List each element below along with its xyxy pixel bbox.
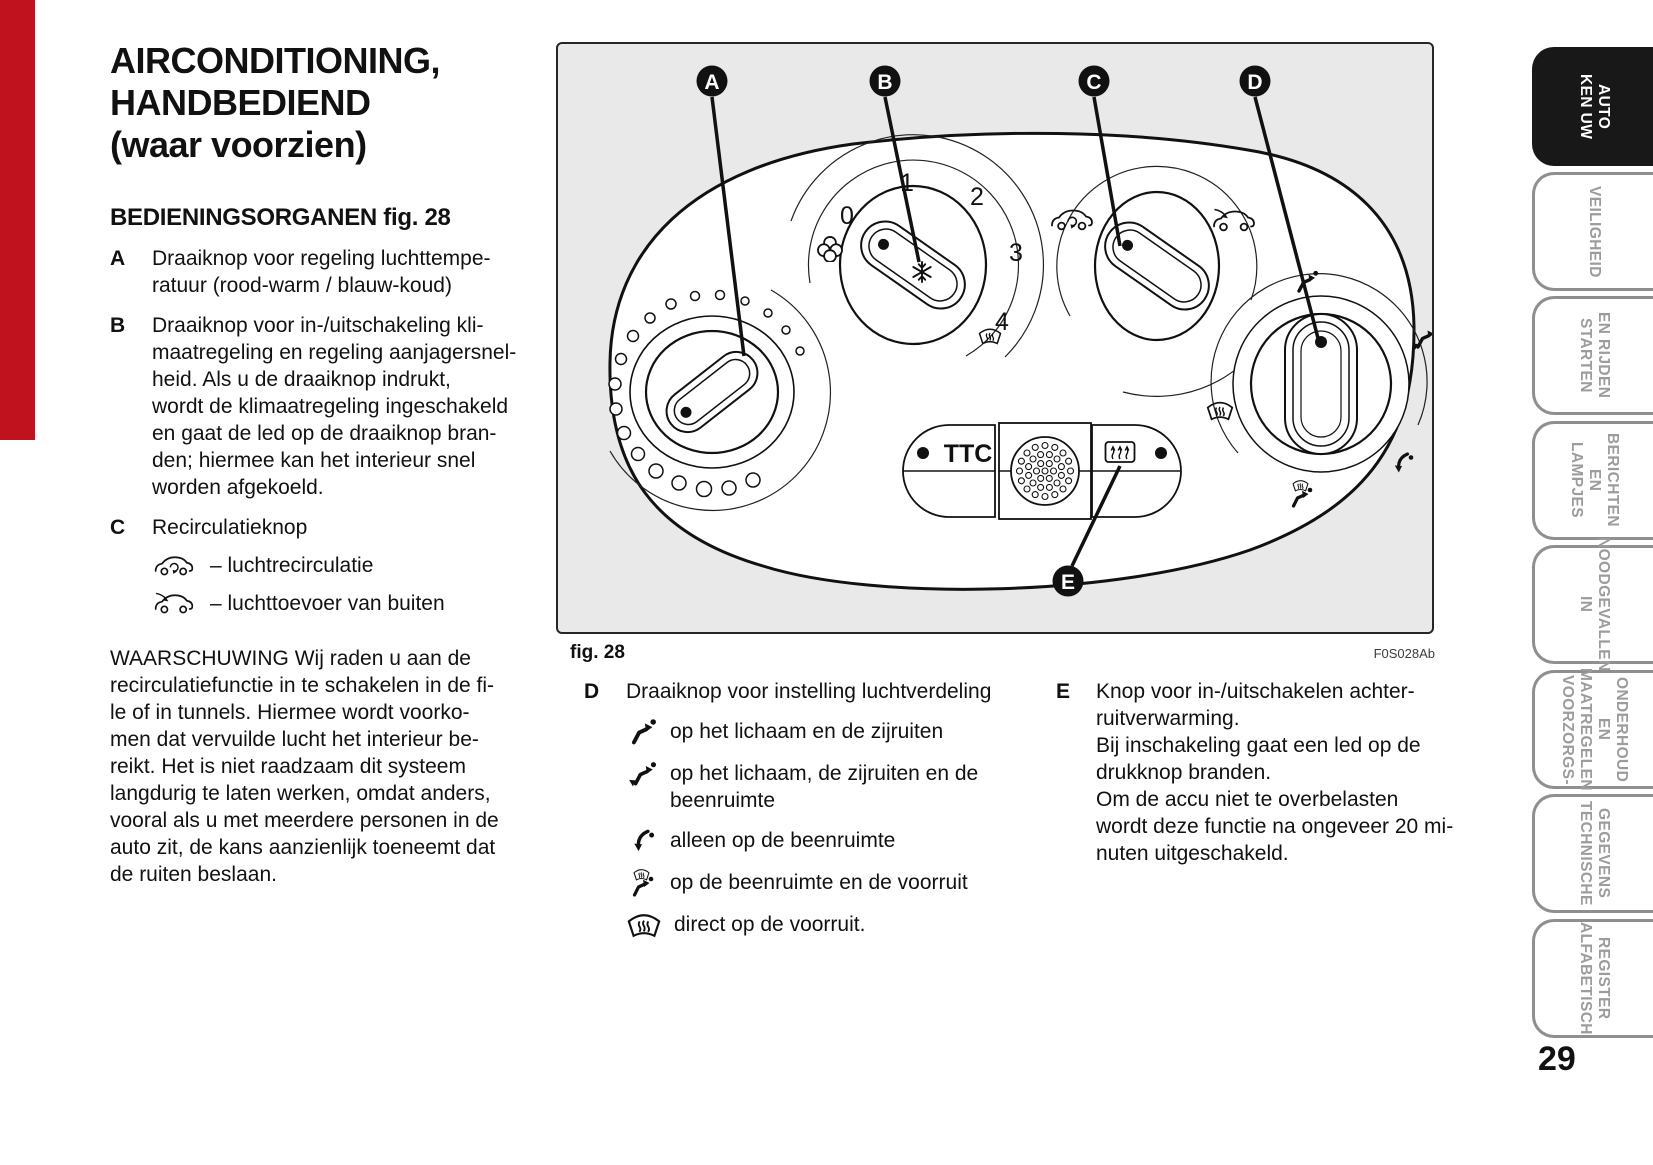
sidebar-tab-veiligheid[interactable]: VEILIGHEID bbox=[1532, 172, 1653, 291]
distribution-mode-text: alleen op de beenruimte bbox=[670, 827, 895, 854]
distribution-mode-row: alleen op de beenruimte bbox=[626, 827, 1059, 856]
left-text-column: AIRCONDITIONING, HANDBEDIEND (waar voorz… bbox=[110, 40, 550, 888]
airflow-body-feet-icon bbox=[626, 759, 658, 789]
page-edge-color-bar bbox=[0, 0, 35, 440]
control-label-e: E bbox=[1056, 678, 1096, 867]
recirculation-mode-text: – luchtrecirculatie bbox=[210, 552, 373, 579]
sidebar-tab-label: KEN UW AUTO bbox=[1576, 74, 1612, 139]
sidebar-tab-label: VEILIGHEID bbox=[1585, 186, 1603, 278]
figure-label-b: B bbox=[877, 71, 892, 94]
sidebar-tab-technische-gegevens[interactable]: TECHNISCHE GEGEVENS bbox=[1532, 794, 1653, 913]
sidebar-tab-label: ALFABETISCH REGISTER bbox=[1576, 922, 1612, 1035]
control-text-a: Draaiknop voor regeling luchttempe- ratu… bbox=[152, 245, 491, 299]
control-label-b: B bbox=[110, 312, 152, 501]
control-item-a: A Draaiknop voor regeling luchttempe- ra… bbox=[110, 245, 550, 299]
button-cluster: TTC bbox=[903, 423, 1181, 519]
distribution-mode-row: op de beenruimte en de voorruit bbox=[626, 869, 1059, 898]
speaker-grille-icon bbox=[1011, 437, 1079, 505]
sidebar-tab-starten-en-rijden[interactable]: STARTEN EN RIJDEN bbox=[1532, 296, 1653, 415]
airflow-feet-icon bbox=[626, 826, 658, 856]
sidebar-tab-label: VOORZORGS- MAATREGELEN EN ONDERHOUD bbox=[1558, 668, 1630, 791]
ttc-label: TTC bbox=[944, 440, 993, 468]
figure-code: F0S028Ab bbox=[1235, 646, 1435, 661]
windscreen-icon bbox=[626, 912, 662, 938]
airflow-feet-windscreen-icon bbox=[626, 868, 658, 898]
warning-paragraph: WAARSCHUWING Wij raden u aan de recircul… bbox=[110, 645, 550, 888]
climate-panel-drawing: 0 1 2 3 4 T bbox=[558, 44, 1432, 632]
sidebar-tab-alfabetisch-register[interactable]: ALFABETISCH REGISTER bbox=[1532, 919, 1653, 1038]
fan-position-4: 4 bbox=[995, 308, 1009, 336]
outside-air-mode-text: – luchttoevoer van buiten bbox=[210, 590, 445, 617]
figure-label-c: C bbox=[1086, 71, 1101, 94]
figure-caption: fig. 28 bbox=[570, 642, 625, 664]
sidebar-tab-voorzorgsmaatregelen[interactable]: VOORZORGS- MAATREGELEN EN ONDERHOUD bbox=[1532, 670, 1653, 789]
figure-label-a: A bbox=[704, 71, 719, 94]
fan-position-3: 3 bbox=[1009, 239, 1023, 267]
control-item-c: C Recirculatieknop bbox=[110, 514, 550, 541]
distribution-mode-row: op het lichaam en de zijruiten bbox=[626, 718, 1059, 747]
sidebar-tab-ken-uw-auto[interactable]: KEN UW AUTO bbox=[1532, 47, 1653, 166]
figure-28-panel-illustration: 0 1 2 3 4 T bbox=[556, 42, 1434, 634]
sidebar-tab-label: IN NOODGEVALLEN bbox=[1576, 537, 1612, 672]
distribution-mode-row: op het lichaam, de zijruiten en de beenr… bbox=[626, 760, 1059, 814]
sidebar-tab-in-noodgevallen[interactable]: IN NOODGEVALLEN bbox=[1532, 545, 1653, 664]
distribution-mode-text: op het lichaam, de zijruiten en de beenr… bbox=[670, 760, 978, 814]
distribution-mode-text: op het lichaam en de zijruiten bbox=[670, 718, 943, 745]
outside-air-mode-row: – luchttoevoer van buiten bbox=[152, 590, 550, 617]
figure-label-d: D bbox=[1247, 71, 1262, 94]
control-text-c: Recirculatieknop bbox=[152, 514, 307, 541]
distribution-mode-text: direct op de voorruit. bbox=[674, 911, 865, 938]
sidebar-tab-label: TECHNISCHE GEGEVENS bbox=[1576, 801, 1612, 906]
sidebar-tab-lampjes-en-berichten[interactable]: LAMPJES EN BERICHTEN bbox=[1532, 421, 1653, 540]
control-item-b: B Draaiknop voor in-/uitschakeling kli- … bbox=[110, 312, 550, 501]
distribution-mode-row: direct op de voorruit. bbox=[626, 911, 1059, 938]
recirculation-mode-row: – luchtrecirculatie bbox=[152, 552, 550, 579]
control-text-b: Draaiknop voor in-/uitschakeling kli- ma… bbox=[152, 312, 516, 501]
sidebar-tab-label: LAMPJES EN BERICHTEN bbox=[1567, 424, 1621, 537]
control-label-c: C bbox=[110, 514, 152, 541]
car-recirculation-icon bbox=[152, 553, 196, 578]
control-label-a: A bbox=[110, 245, 152, 299]
section-heading: BEDIENINGSORGANEN fig. 28 bbox=[110, 204, 550, 232]
page-title: AIRCONDITIONING, HANDBEDIEND (waar voorz… bbox=[110, 40, 550, 166]
page-number: 29 bbox=[1538, 1040, 1576, 1079]
fan-position-0: 0 bbox=[840, 202, 854, 230]
rear-window-heating-section: E Knop voor in-/uitschakelen achter- rui… bbox=[1056, 678, 1468, 867]
airflow-feet-icon bbox=[1395, 454, 1414, 473]
distribution-heading: Draaiknop voor instelling luchtverdeling bbox=[626, 678, 991, 705]
airflow-body-icon bbox=[626, 717, 658, 747]
sidebar-tab-label: STARTEN EN RIJDEN bbox=[1576, 312, 1612, 398]
distribution-mode-text: op de beenruimte en de voorruit bbox=[670, 869, 968, 896]
car-outside-air-icon bbox=[152, 591, 196, 616]
air-distribution-section: D Draaiknop voor instelling luchtverdeli… bbox=[584, 678, 1059, 938]
control-label-d: D bbox=[584, 678, 626, 705]
rear-window-text: Knop voor in-/uitschakelen achter- ruitv… bbox=[1096, 678, 1453, 867]
figure-label-e: E bbox=[1061, 571, 1075, 594]
fan-position-2: 2 bbox=[970, 183, 984, 211]
